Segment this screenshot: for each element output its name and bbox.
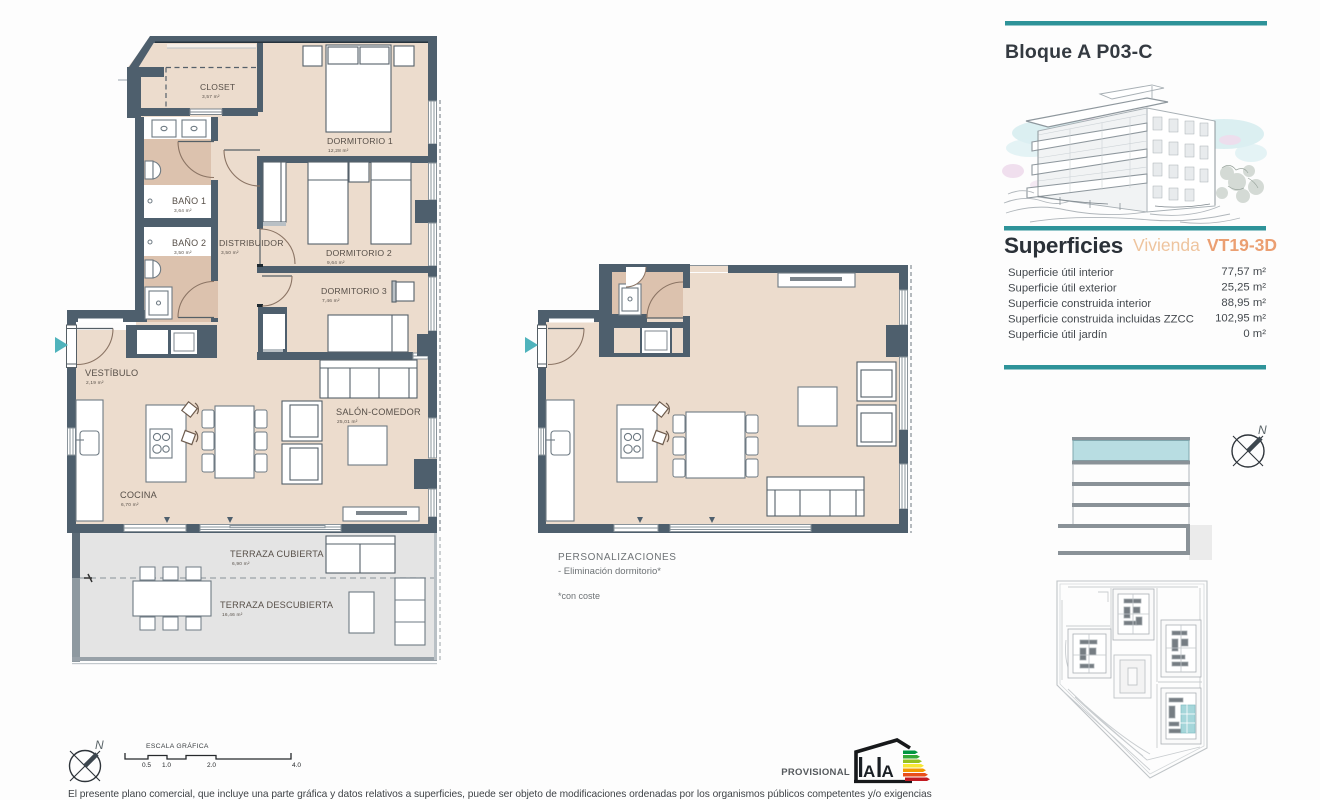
svg-text:COCINA: COCINA [120,490,158,500]
svg-text:CLOSET: CLOSET [200,82,235,92]
svg-text:102,95 m²: 102,95 m² [1215,313,1266,325]
svg-text:6,90 m²: 6,90 m² [232,561,250,567]
svg-text:TERRAZA DESCUBIERTA: TERRAZA DESCUBIERTA [220,600,334,610]
svg-text:25,01 m²: 25,01 m² [337,419,358,425]
svg-text:7,46 m²: 7,46 m² [322,298,340,304]
svg-text:Superficie útil interior: Superficie útil interior [1008,267,1114,279]
svg-text:2,19 m²: 2,19 m² [86,380,104,386]
svg-text:DORMITORIO 2: DORMITORIO 2 [326,248,392,258]
svg-text:3,50 m²: 3,50 m² [174,250,192,256]
svg-text:- Eliminación dormitorio*: - Eliminación dormitorio* [558,566,661,577]
svg-text:0.5: 0.5 [142,762,151,769]
svg-text:ESCALA GRÁFICA: ESCALA GRÁFICA [146,741,209,750]
svg-text:VESTÍBULO: VESTÍBULO [85,368,138,378]
svg-text:*con coste: *con coste [558,591,600,601]
svg-text:Superficie construida incluida: Superficie construida incluidas ZZCC [1008,314,1194,326]
svg-text:DORMITORIO 1: DORMITORIO 1 [327,136,393,146]
svg-text:DISTRIBUIDOR: DISTRIBUIDOR [219,238,284,248]
svg-text:SALÓN-COMEDOR: SALÓN-COMEDOR [336,407,421,417]
svg-text:12,28 m²: 12,28 m² [328,148,349,154]
svg-text:El presente plano comercial, q: El presente plano comercial, que incluye… [68,789,932,800]
svg-text:PERSONALIZACIONES: PERSONALIZACIONES [558,552,677,563]
svg-text:1.0: 1.0 [162,762,171,769]
svg-text:BAÑO 2: BAÑO 2 [172,238,206,248]
svg-text:88,95 m²: 88,95 m² [1221,297,1266,309]
svg-text:16,46 m²: 16,46 m² [222,612,243,618]
svg-text:N: N [95,738,104,752]
svg-text:3,50 m²: 3,50 m² [221,250,239,256]
svg-text:VT19-3D: VT19-3D [1207,235,1277,255]
svg-text:Superficie útil exterior: Superficie útil exterior [1008,283,1117,295]
svg-text:Superficie construida interior: Superficie construida interior [1008,298,1151,310]
svg-text:A: A [863,762,875,781]
svg-text:2.0: 2.0 [207,762,216,769]
svg-text:3,57 m²: 3,57 m² [202,94,220,100]
svg-text:Superficie útil jardín: Superficie útil jardín [1008,329,1107,341]
svg-text:25,25 m²: 25,25 m² [1221,282,1266,294]
svg-text:A: A [882,762,894,781]
svg-text:PROVISIONAL: PROVISIONAL [781,767,850,778]
svg-text:DORMITORIO 3: DORMITORIO 3 [321,286,387,296]
svg-text:4.0: 4.0 [292,762,301,769]
svg-text:N: N [1258,423,1267,437]
svg-text:0 m²: 0 m² [1243,328,1266,340]
svg-text:6,70 m²: 6,70 m² [121,502,139,508]
svg-text:Bloque A P03-C: Bloque A P03-C [1005,41,1153,63]
svg-text:3,64 m²: 3,64 m² [174,208,192,214]
svg-text:77,57 m²: 77,57 m² [1221,266,1266,278]
svg-text:TERRAZA CUBIERTA: TERRAZA CUBIERTA [230,549,324,559]
svg-text:BAÑO 1: BAÑO 1 [172,196,206,206]
svg-text:9,64 m²: 9,64 m² [327,260,345,266]
svg-text:Vivienda: Vivienda [1133,235,1200,255]
svg-text:Superficies: Superficies [1004,233,1123,258]
